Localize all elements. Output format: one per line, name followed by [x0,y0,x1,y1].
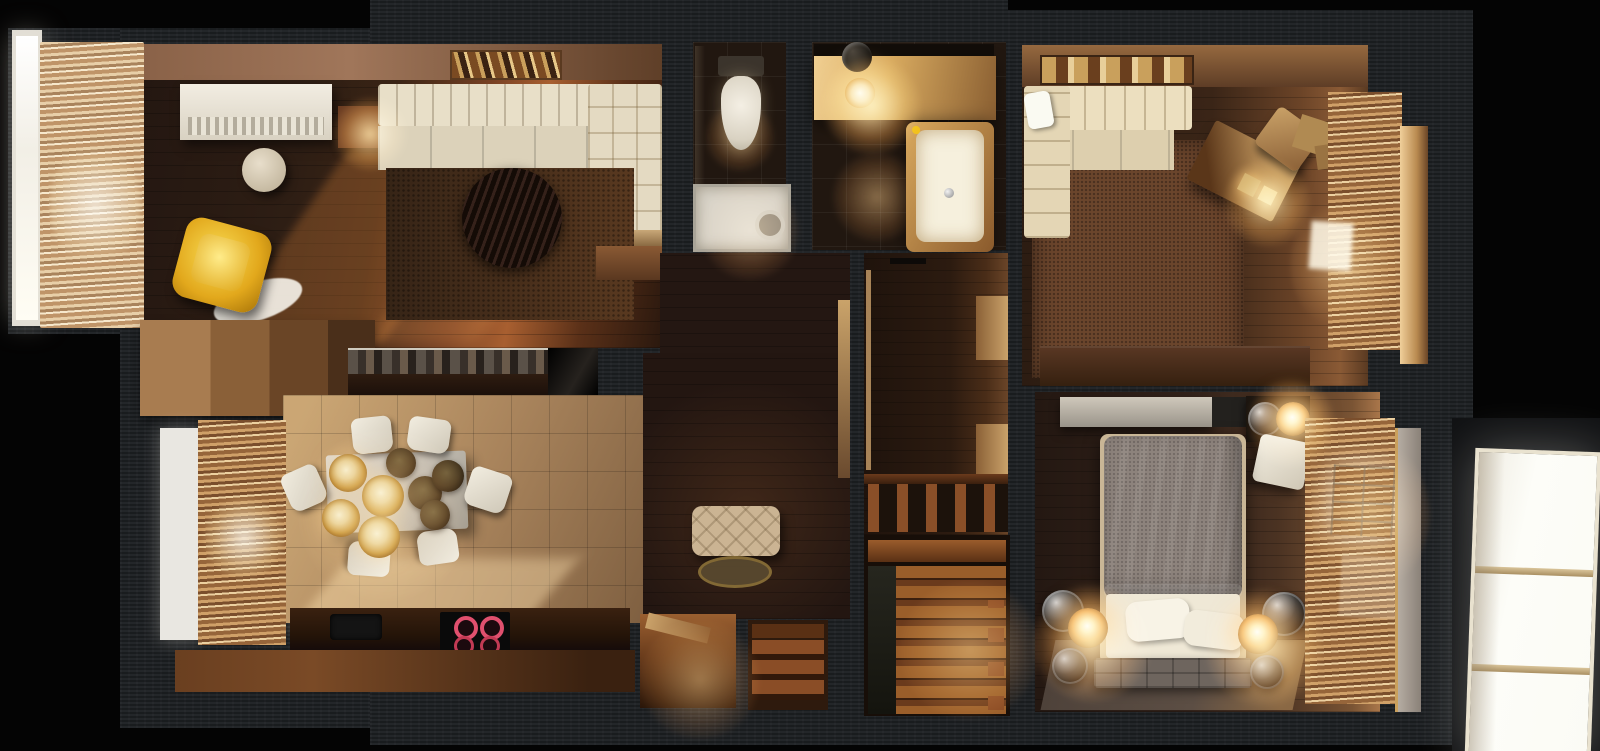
mosaic-backsplash [348,348,548,376]
entry-landing [752,624,824,638]
corridor-cabinet [976,296,1008,360]
hall-side-door [838,300,850,478]
stair-landing [868,540,1006,562]
dining-chair [416,527,460,566]
long-sideboard [1040,346,1310,386]
kitchen-floor-wood-strip [175,650,635,692]
chrome-globe-lamp [1250,655,1284,689]
staircase [864,535,1010,716]
bathroom [812,42,1006,250]
window-pane [16,36,38,320]
living-curtains [40,42,144,328]
bedroom-window-light [1330,464,1396,537]
armchair-cushion [189,232,252,294]
dining-chair [406,415,452,455]
tv-console [180,84,332,140]
balcony [1452,418,1600,751]
foot-bench [1094,658,1252,688]
lit-globe-lamp [1238,614,1278,654]
dining-chair [350,415,394,455]
office [1022,45,1428,386]
railing-posts [868,484,1008,532]
sofa-back [378,84,608,126]
black-fridge [548,348,598,395]
stair-balusters [988,600,1004,710]
wc-room [693,42,786,250]
gray-duvet [1104,436,1242,598]
wall-art [450,50,562,80]
pendant-shade-gold [322,499,360,537]
entry-opening-door [640,614,736,708]
kitchen-curtains [198,420,286,645]
living-wall-band [143,44,662,80]
living-window-group [12,30,144,330]
hall-floor-upper [660,253,850,360]
living-room [143,44,662,348]
stair-rail-top [864,474,1008,484]
bathtub [916,130,984,242]
pendant-shade-gold [362,475,404,517]
corridor-vent [890,258,926,264]
office-curtains [1328,92,1402,350]
candle-side-table [338,106,380,148]
kitchen-sink [330,614,382,640]
pillow [1182,608,1246,651]
pendant-shade-gold [358,516,400,558]
window-jamb-shade [1469,452,1505,751]
round-rug [698,556,772,588]
tufted-bench [692,506,780,556]
stair-runner [868,566,896,714]
pendant-shade-dark [432,460,464,492]
pendant-shade-dark [386,448,416,478]
pendant-shade-gold [329,454,367,492]
entry-door-leaf [645,612,711,643]
entry-steps [752,640,824,700]
upper-counter [348,374,548,395]
pendant-sphere-lamp [842,42,872,72]
cooktop [440,612,510,654]
pendant-shade-dark [420,500,450,530]
tv-console-ribs [188,117,324,135]
kitchen-window-sill [160,428,200,640]
patterned-rug [1040,55,1194,85]
pillow [1124,597,1191,642]
corridor-door-edge [866,270,871,470]
lit-globe-lamp [1068,608,1108,648]
wardrobe-corridor [864,253,1008,535]
toilet-tank [718,56,764,76]
round-coffee-table [462,168,562,268]
vanity-counter [814,56,996,120]
hallway [638,246,852,716]
shower-head [755,210,785,240]
rubber-duck [912,126,920,134]
sofa-seat [378,126,596,170]
office-pelmet [1400,126,1428,364]
dresser-dark-module [1212,397,1246,427]
bedroom-window-reflection [1338,555,1399,620]
kitchen-dining [120,318,632,698]
vanity-bulb [845,78,875,108]
bedroom-pelmet [1395,428,1421,712]
entry-opening-steps [748,620,828,710]
dresser [1060,397,1212,427]
mirror-strip [814,44,994,56]
balcony-window [1465,448,1600,751]
bathtub-faucet [944,188,954,198]
bedroom [1035,392,1425,714]
chrome-globe-lamp [1052,648,1088,684]
bedroom-armchair [1252,433,1313,491]
round-side-table [242,148,286,192]
office-window-light [1308,221,1353,272]
apartment-floorplan [0,0,1600,751]
